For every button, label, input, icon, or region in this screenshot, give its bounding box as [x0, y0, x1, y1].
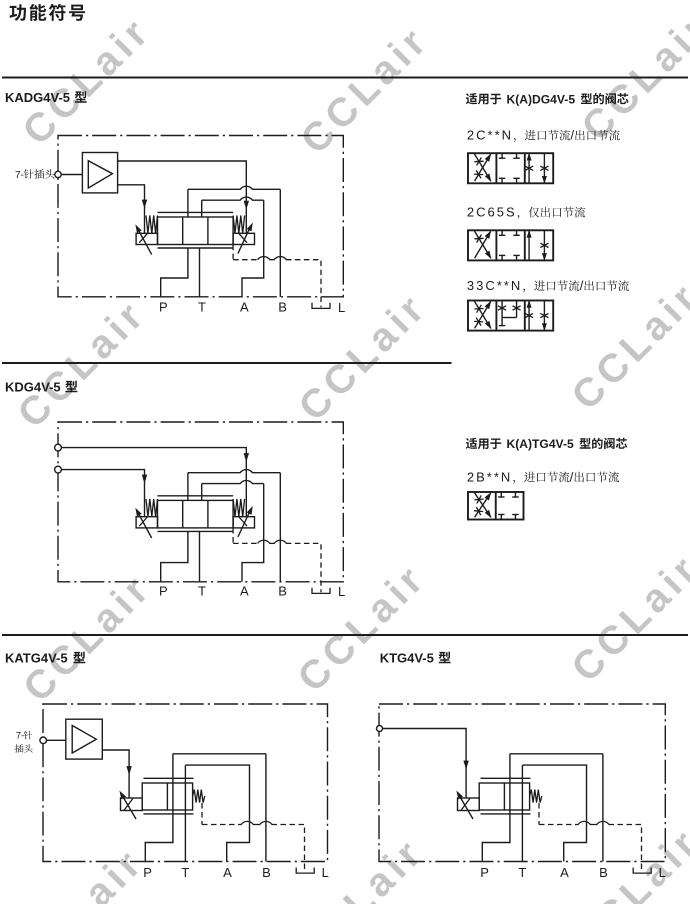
svg-text:/: /: [570, 469, 574, 484]
svg-text:P: P: [143, 865, 152, 880]
svg-text:T: T: [181, 865, 189, 880]
svg-text:A: A: [560, 865, 569, 880]
svg-text:KTG4V-5: KTG4V-5: [380, 651, 434, 666]
svg-text:B: B: [599, 865, 608, 880]
svg-text:A: A: [223, 865, 232, 880]
svg-text:KADG4V-5: KADG4V-5: [5, 90, 70, 105]
svg-text:B: B: [262, 865, 271, 880]
svg-text:/: /: [580, 278, 584, 293]
svg-text:7-: 7-: [15, 170, 24, 181]
svg-text:KDG4V-5: KDG4V-5: [5, 380, 61, 395]
svg-text:K(A)TG4V-5: K(A)TG4V-5: [507, 437, 574, 451]
svg-text:P: P: [159, 584, 168, 599]
svg-text:B: B: [278, 300, 287, 315]
svg-text:K(A)DG4V-5: K(A)DG4V-5: [507, 92, 576, 106]
svg-text:2B**N: 2B**N: [467, 469, 512, 484]
svg-text:A: A: [240, 584, 249, 599]
svg-text:2C65S: 2C65S: [467, 205, 517, 220]
svg-text:L: L: [338, 300, 345, 315]
svg-text:A: A: [240, 300, 249, 315]
svg-text:L: L: [659, 865, 666, 880]
svg-text:2C**N: 2C**N: [467, 128, 513, 143]
svg-text:7-: 7-: [16, 731, 24, 741]
svg-text:B: B: [278, 584, 287, 599]
svg-text:33C**N: 33C**N: [467, 278, 522, 293]
svg-text:T: T: [518, 865, 526, 880]
svg-text:T: T: [198, 584, 206, 599]
svg-text:KATG4V-5: KATG4V-5: [5, 651, 68, 666]
svg-text:L: L: [322, 865, 329, 880]
svg-text:P: P: [480, 865, 489, 880]
svg-text:P: P: [159, 300, 168, 315]
svg-text:T: T: [198, 300, 206, 315]
svg-text:/: /: [571, 128, 575, 143]
svg-text:L: L: [338, 584, 345, 599]
